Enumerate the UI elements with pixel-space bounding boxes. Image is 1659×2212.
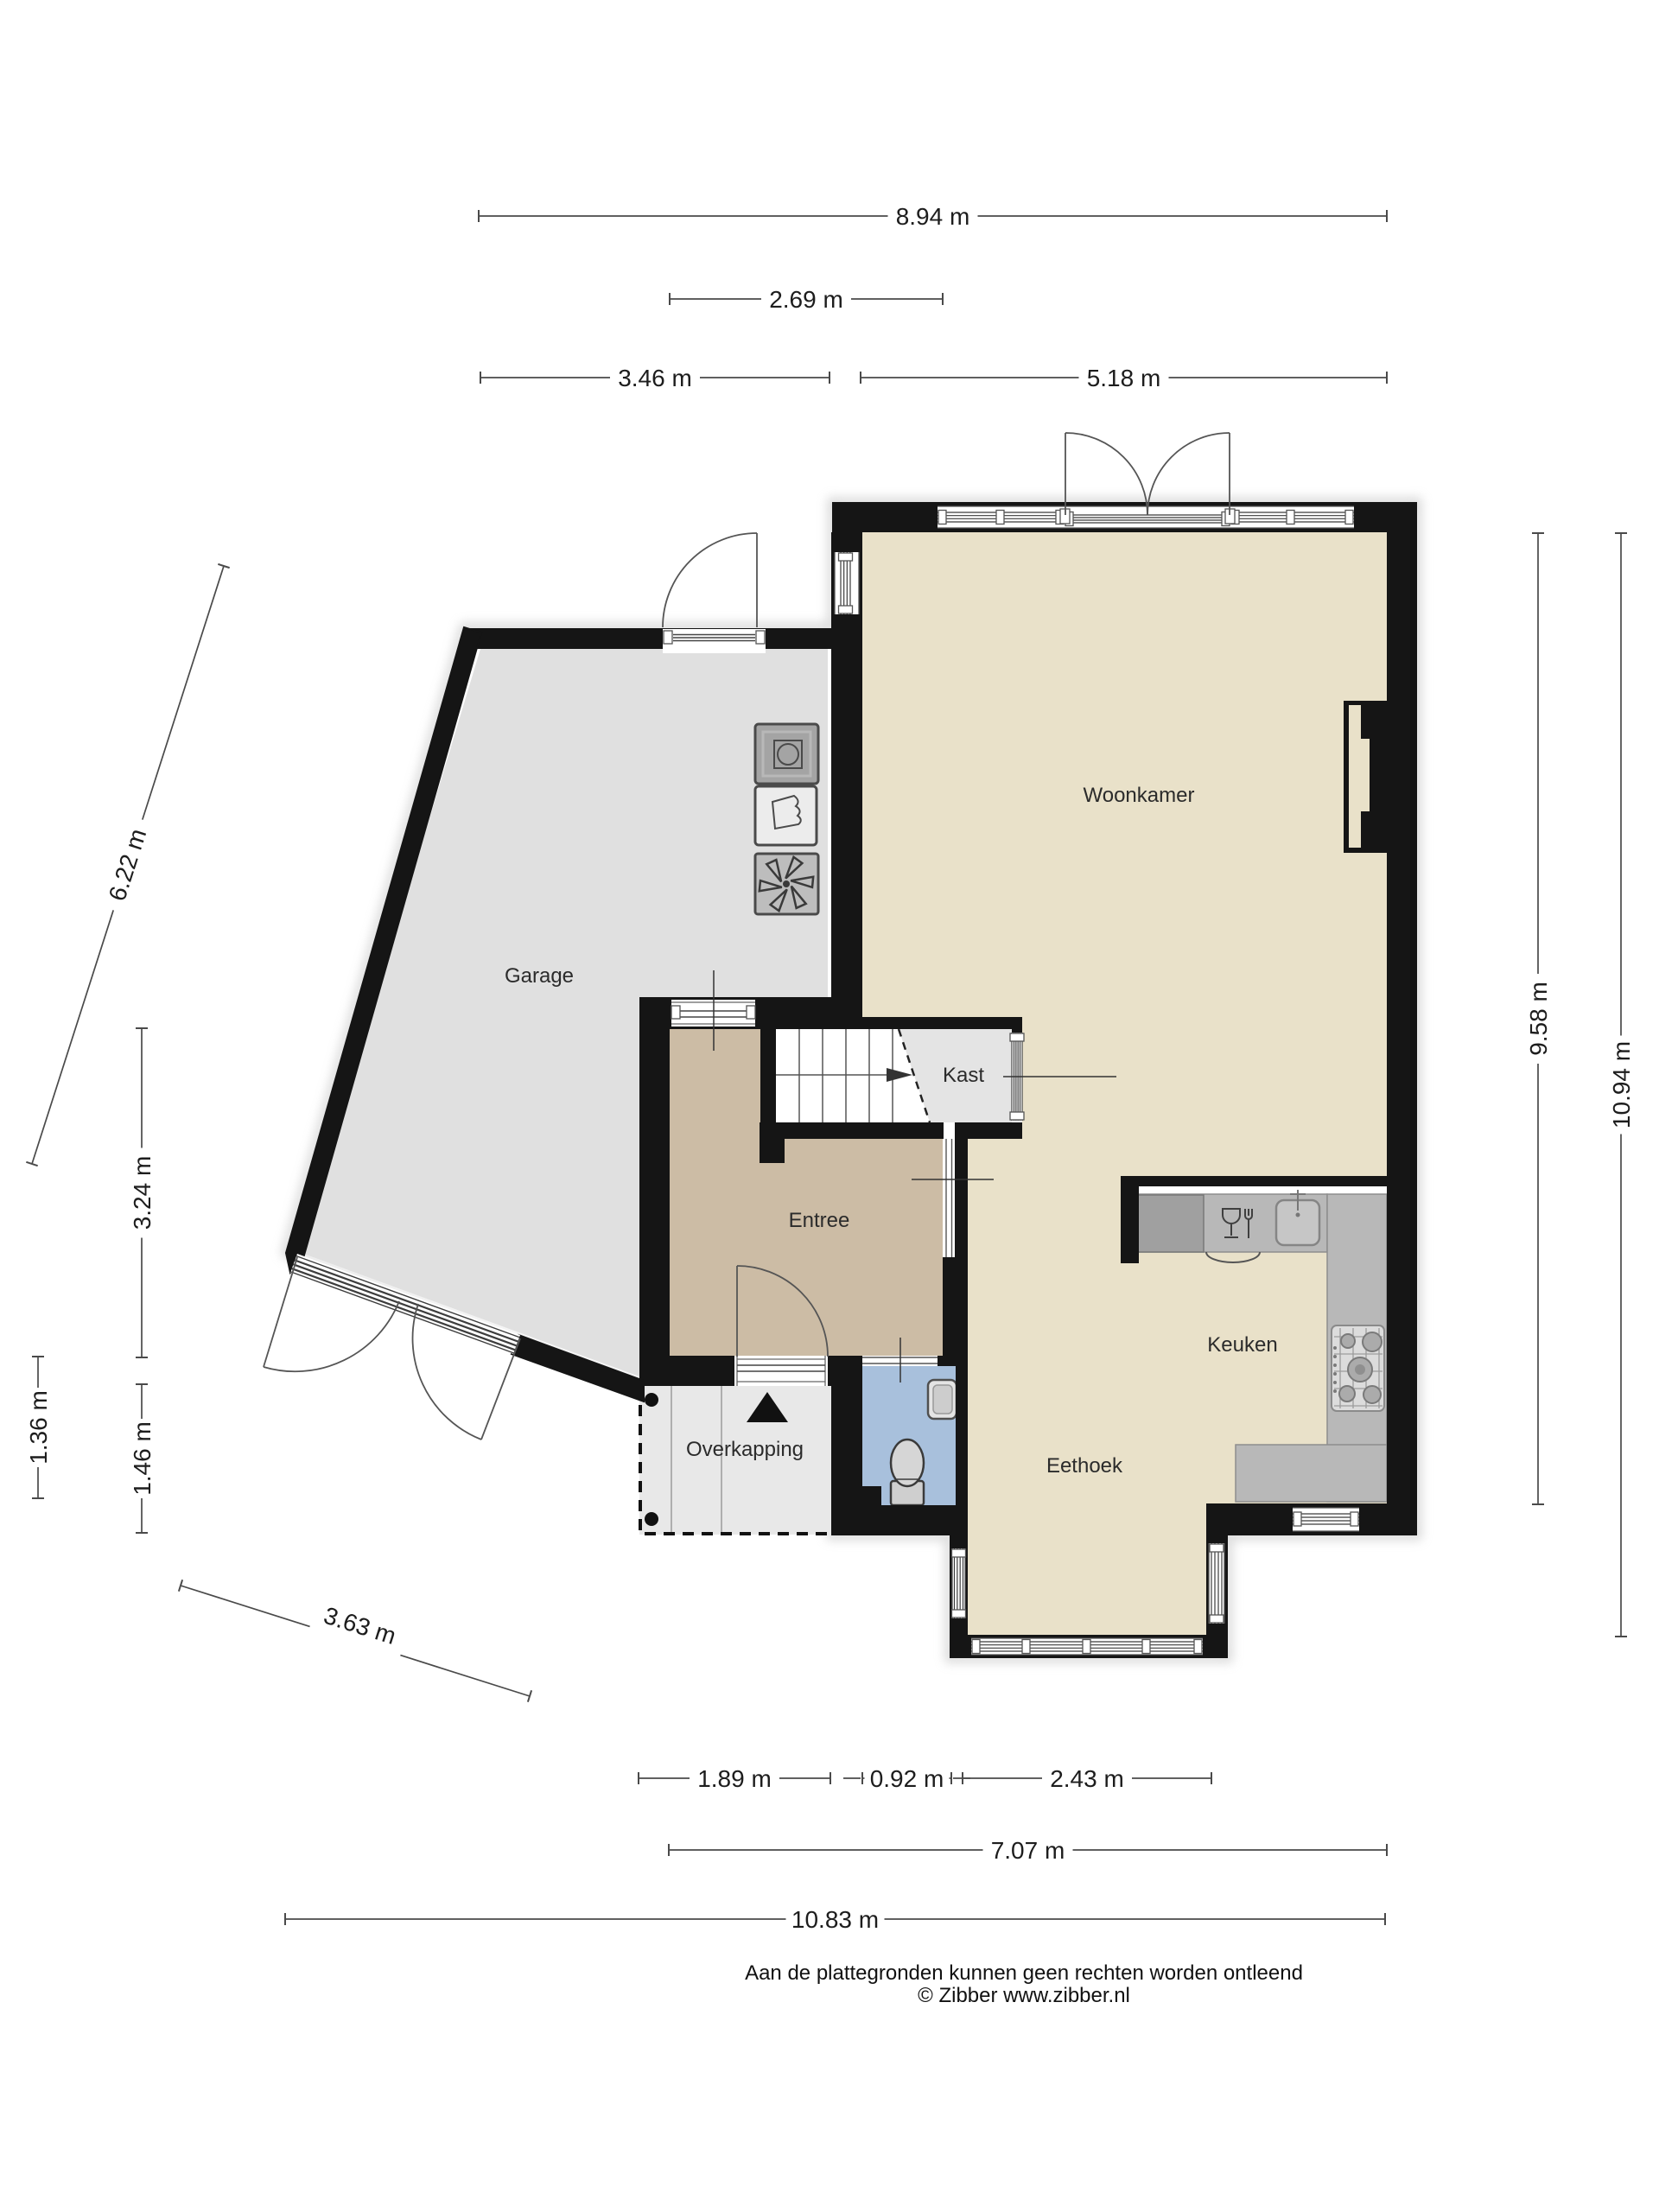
svg-text:Entree: Entree [789,1209,850,1232]
svg-text:Overkapping: Overkapping [686,1438,804,1461]
svg-text:0.92 m: 0.92 m [870,1765,944,1792]
svg-text:© Zibber www.zibber.nl: © Zibber www.zibber.nl [918,1984,1130,2007]
svg-text:3.46 m: 3.46 m [618,365,692,391]
svg-text:2.43 m: 2.43 m [1050,1765,1124,1792]
svg-text:7.07 m: 7.07 m [991,1837,1065,1864]
svg-text:10.83 m: 10.83 m [791,1906,879,1933]
svg-text:8.94 m: 8.94 m [896,203,970,230]
svg-text:3.24 m: 3.24 m [129,1156,156,1230]
svg-text:2.69 m: 2.69 m [769,286,843,313]
svg-text:1.89 m: 1.89 m [697,1765,772,1792]
svg-text:5.18 m: 5.18 m [1087,365,1161,391]
svg-text:3.63 m: 3.63 m [321,1602,399,1649]
svg-text:Garage: Garage [505,964,574,988]
svg-text:1.36 m: 1.36 m [25,1390,52,1465]
svg-text:Kast: Kast [943,1064,984,1087]
svg-text:1.46 m: 1.46 m [129,1421,156,1496]
svg-text:Eethoek: Eethoek [1046,1454,1123,1478]
svg-text:Aan de plattegronden kunnen ge: Aan de plattegronden kunnen geen rechten… [745,1961,1303,1985]
svg-text:6.22 m: 6.22 m [104,825,152,904]
svg-text:10.94 m: 10.94 m [1608,1041,1635,1128]
svg-text:Woonkamer: Woonkamer [1084,784,1195,807]
svg-text:9.58 m: 9.58 m [1525,982,1552,1056]
svg-text:Keuken: Keuken [1207,1333,1277,1357]
